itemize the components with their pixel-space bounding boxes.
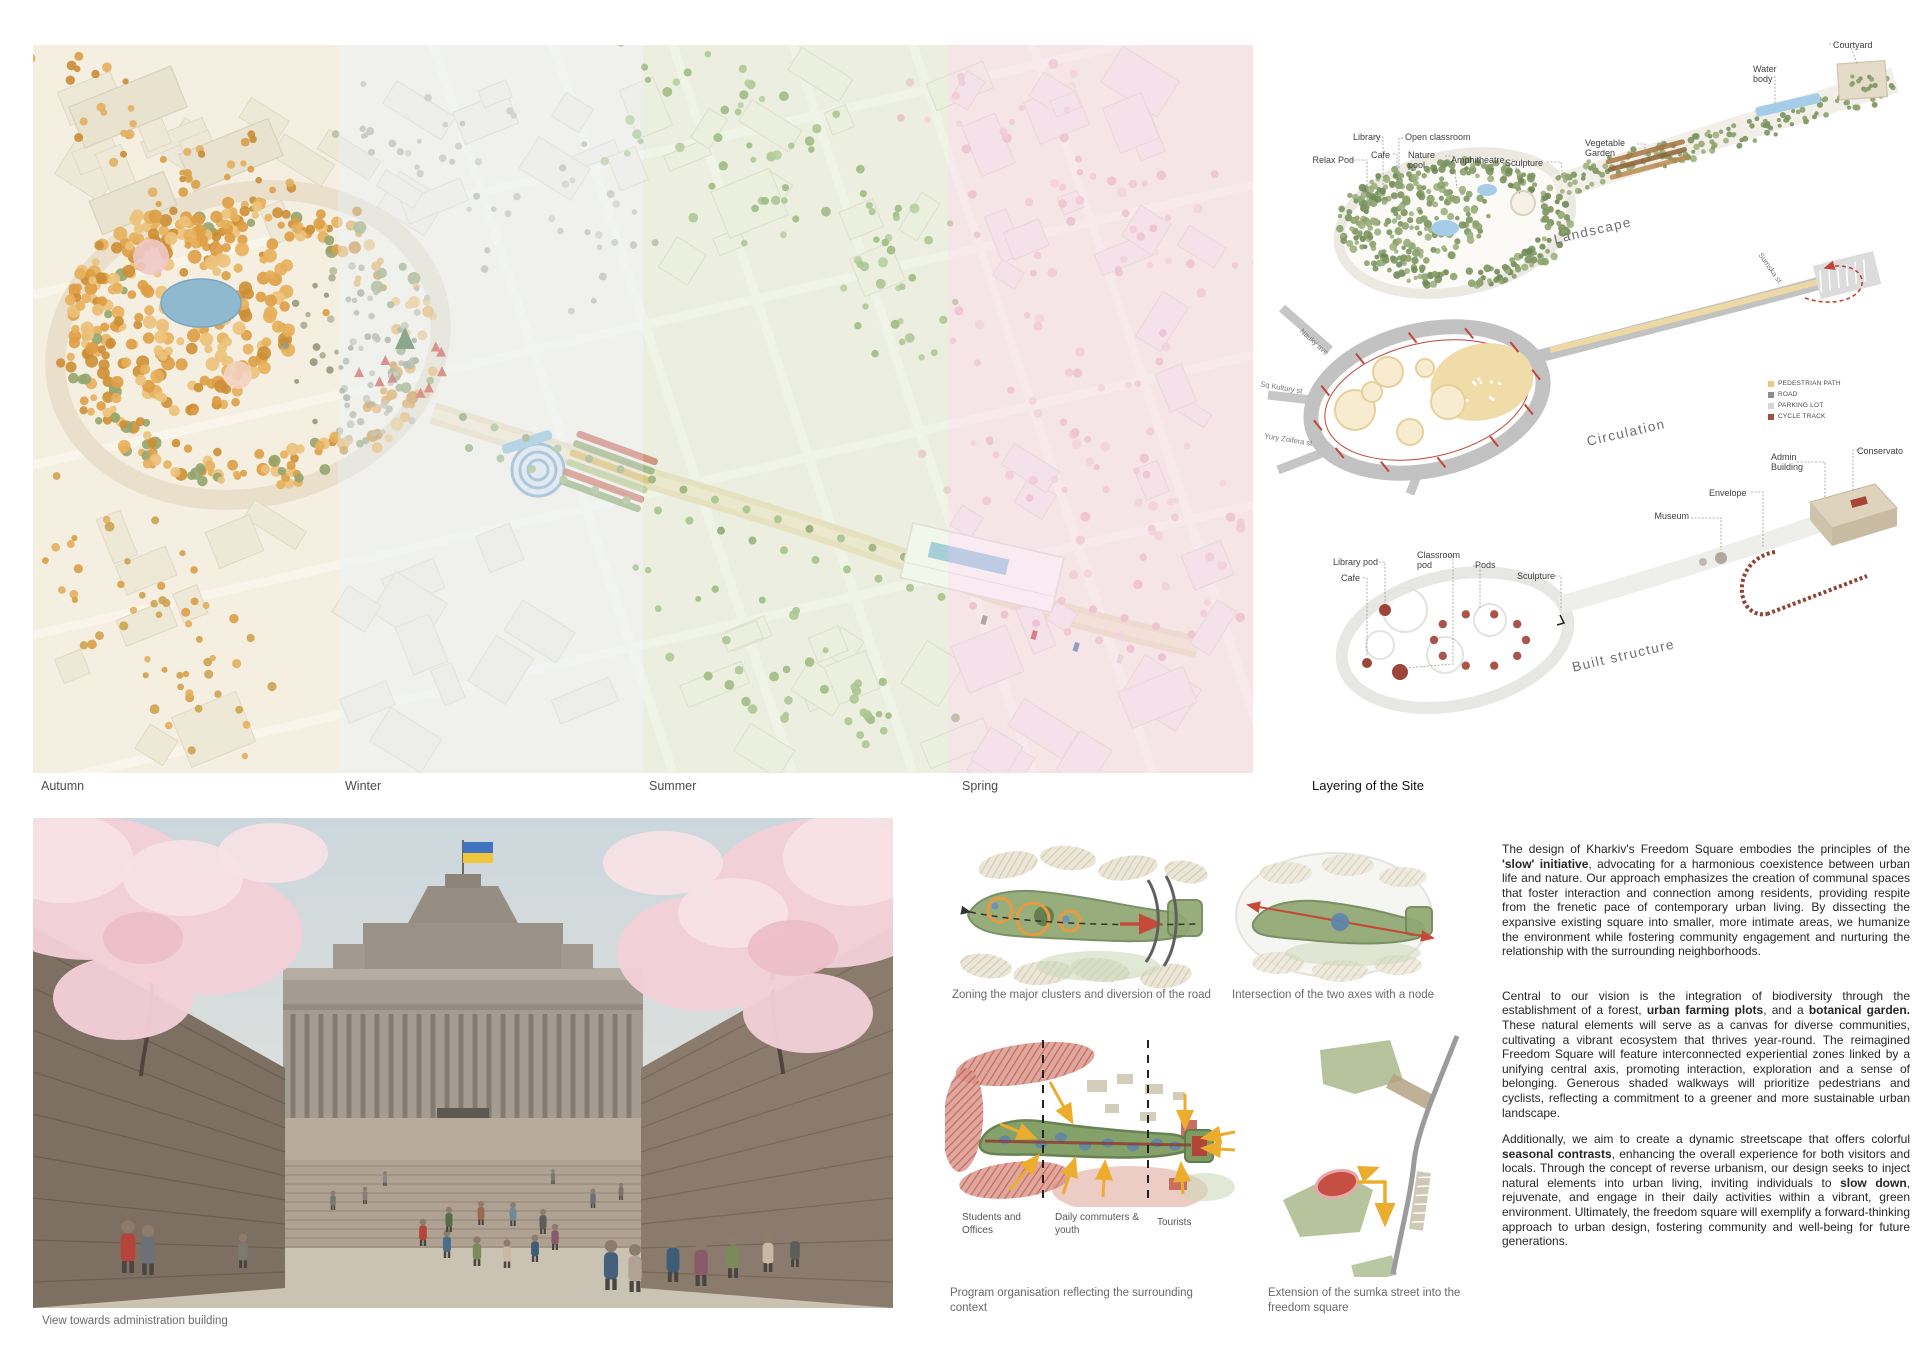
season-label-summer: Summer [649, 779, 696, 793]
legend-label: PARKING LOT [1778, 402, 1823, 409]
diagram-program: Students and Offices Daily commuters & y… [945, 1032, 1245, 1282]
layering-title: Layering of the Site [1312, 778, 1424, 793]
narrative-paragraph: Additionally, we aim to create a dynamic… [1502, 1132, 1910, 1249]
label-pods: Pods [1475, 560, 1496, 570]
diagram-intersection-caption: Intersection of the two axes with a node [1232, 988, 1472, 1003]
diagram-zoning-caption: Zoning the major clusters and diversion … [952, 988, 1242, 1003]
render-view [33, 818, 893, 1308]
label-built-sculpture: Sculpture [1517, 571, 1555, 581]
legend-label: ROAD [1778, 391, 1798, 398]
season-label-winter: Winter [345, 779, 381, 793]
label-relax-pod: Relax Pod [1309, 155, 1354, 165]
extension-sketch [1265, 1032, 1465, 1277]
label-courtyard: Courtyard [1833, 40, 1873, 50]
legend-swatch [1768, 403, 1774, 409]
legend-item: PEDESTRIAN PATH [1768, 380, 1841, 387]
diagram-extension [1265, 1032, 1465, 1277]
zoning-sketch [948, 840, 1210, 990]
built-structure-diagram: Library pod Cafe Classroom pod Pods Scul… [1305, 440, 1920, 725]
diagram-intersection [1228, 845, 1440, 990]
label-tourists: Tourists [1157, 1217, 1191, 1230]
diagram-zoning [948, 840, 1210, 990]
diagram-program-caption: Program organisation reflecting the surr… [950, 1286, 1230, 1316]
program-sketch [945, 1032, 1245, 1207]
legend-item: ROAD [1768, 391, 1841, 398]
render-caption: View towards administration building [42, 1314, 228, 1329]
label-cafe: Cafe [1371, 150, 1390, 160]
label-amphitheatre: Amphitheatre [1451, 155, 1505, 165]
presentation-board: Autumn Winter Summer Spring Layering of … [0, 0, 1920, 1357]
label-envelope: Envelope [1709, 488, 1747, 498]
label-nature-pool: Nature pool [1408, 150, 1444, 171]
legend-item: PARKING LOT [1768, 402, 1841, 409]
legend-swatch [1768, 392, 1774, 398]
label-museum: Museum [1647, 511, 1689, 521]
label-admin-building: Admin Building [1771, 452, 1815, 473]
legend-label: PEDESTRIAN PATH [1778, 380, 1841, 387]
intersection-sketch [1228, 845, 1440, 990]
season-label-autumn: Autumn [41, 779, 84, 793]
narrative-text: The design of Kharkiv's Freedom Square e… [1502, 842, 1910, 1279]
legend-label: CYCLE TRACK [1778, 413, 1826, 420]
seasonal-masterplan [33, 45, 1253, 773]
label-vegetable-garden: Vegetable Garden [1585, 138, 1637, 159]
label-daily-commuters: Daily commuters & youth [1055, 1212, 1143, 1237]
legend-item: CYCLE TRACK [1768, 413, 1841, 420]
label-students-offices: Students and Offices [962, 1212, 1034, 1237]
circulation-legend: PEDESTRIAN PATHROADPARKING LOTCYCLE TRAC… [1768, 380, 1841, 424]
legend-swatch [1768, 381, 1774, 387]
built-structure-axon [1305, 440, 1920, 725]
label-built-cafe: Cafe [1341, 573, 1360, 583]
season-label-spring: Spring [962, 779, 998, 793]
render-illustration [33, 818, 893, 1308]
label-water-body: Water body [1753, 64, 1787, 85]
label-conservatory: Conservato [1857, 446, 1903, 456]
label-sculpture: Sculpture [1505, 158, 1543, 168]
narrative-paragraph: Central to our vision is the integration… [1502, 989, 1910, 1120]
diagram-extension-caption: Extension of the sumka street into the f… [1268, 1286, 1498, 1316]
legend-swatch [1768, 414, 1774, 420]
label-library: Library [1353, 132, 1381, 142]
label-classroom-pod: Classroom pod [1417, 550, 1477, 571]
label-library-pod: Library pod [1333, 557, 1378, 567]
label-open-classroom: Open classroom [1405, 132, 1495, 142]
narrative-paragraph: The design of Kharkiv's Freedom Square e… [1502, 842, 1910, 959]
masterplan-illustration [33, 45, 1253, 773]
